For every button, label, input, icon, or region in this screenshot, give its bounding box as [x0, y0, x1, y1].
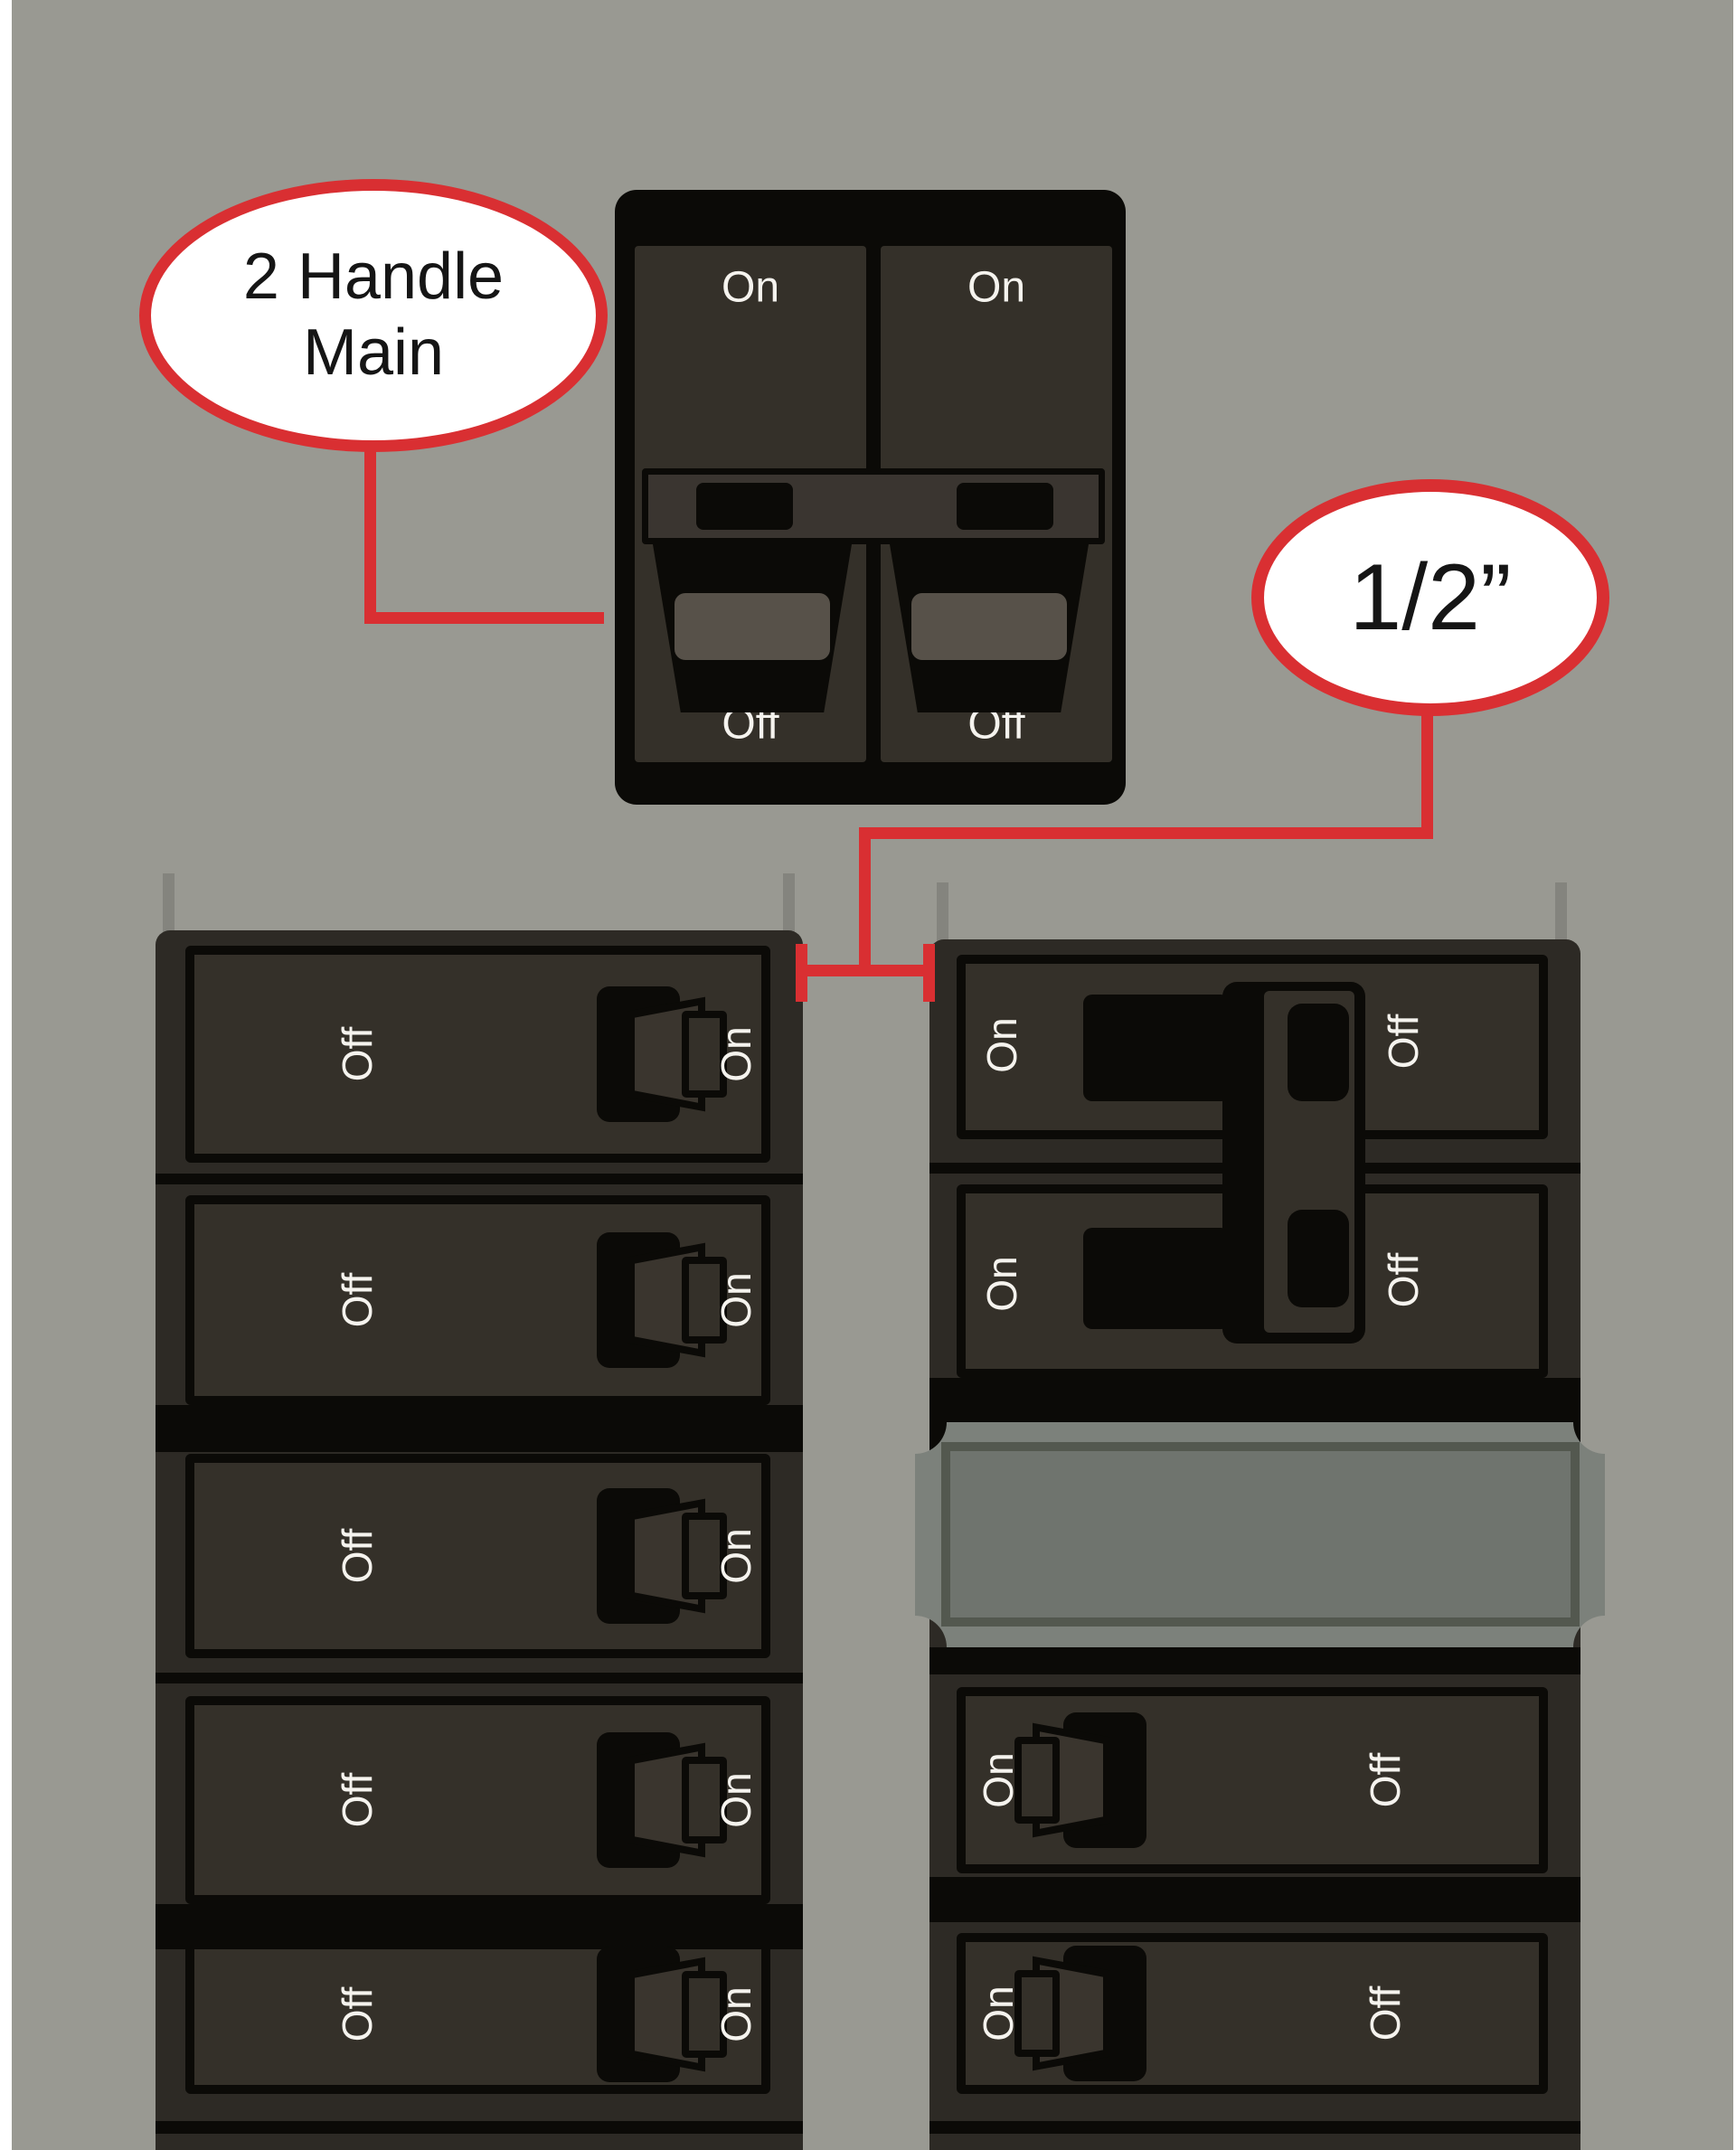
blank-filler-plate	[915, 1422, 1605, 1647]
main-on-label: On	[967, 263, 1025, 313]
callout-main-line1: 2 Handle	[243, 240, 504, 316]
handle-paddle-icon	[1083, 995, 1230, 1101]
callout-2-handle-main: 2 Handle Main	[139, 179, 608, 452]
row-gap-band	[929, 1877, 1580, 1922]
leader-line	[364, 612, 604, 624]
row-divider	[929, 2121, 1580, 2134]
breaker-on-label: On	[974, 1985, 1023, 2041]
breaker-on-label: On	[712, 1986, 760, 2042]
blank-plate-inset	[946, 1447, 1575, 1622]
callout-half-inch: 1/2”	[1251, 479, 1609, 716]
panel-tab	[937, 882, 948, 946]
breaker-off-label: Off	[1361, 1753, 1410, 1808]
main-on-label: On	[722, 263, 779, 313]
panel-tab	[163, 873, 175, 937]
panel-tab	[783, 873, 795, 937]
row-divider	[156, 2121, 803, 2134]
tie-bar-slot-icon	[1288, 1004, 1349, 1101]
row-gap-band	[156, 1405, 803, 1452]
tie-bar-slot-icon	[957, 483, 1053, 530]
tie-bar-slot-icon	[1288, 1210, 1349, 1307]
breaker-on-label: On	[974, 1752, 1023, 1807]
breaker-on-label: On	[712, 1772, 760, 1827]
row-divider	[156, 1174, 803, 1184]
breaker-on-label: On	[977, 1256, 1026, 1311]
gap-dimension-cap	[923, 944, 935, 1002]
leader-line	[859, 827, 1433, 839]
handle-paddle-icon	[1083, 1228, 1230, 1329]
breaker-off-label: Off	[1379, 1014, 1428, 1070]
breaker-panel-diagram: Off On Off On Off On Off On Off On On Of…	[0, 0, 1736, 2150]
breaker-on-label: On	[712, 1026, 760, 1081]
breaker-off-label: Off	[1379, 1253, 1428, 1308]
handle-grip-icon	[911, 593, 1067, 660]
leader-line	[1421, 712, 1433, 839]
panel-tab	[1555, 882, 1567, 946]
row-gap-band	[156, 1904, 803, 1949]
gap-dimension-cap	[796, 944, 807, 1002]
breaker-on-label: On	[712, 1528, 760, 1583]
row-gap-band	[929, 1647, 1580, 1674]
breaker-on-label: On	[977, 1017, 1026, 1072]
breaker-off-label: Off	[333, 1529, 382, 1584]
breaker-off-label: Off	[333, 1027, 382, 1082]
breaker-on-label: On	[712, 1272, 760, 1327]
tie-bar-slot-icon	[696, 483, 793, 530]
breaker-off-label: Off	[333, 1773, 382, 1828]
breaker-off-label: Off	[1361, 1986, 1410, 2042]
row-divider	[156, 1673, 803, 1683]
callout-gap-label: 1/2”	[1349, 544, 1511, 652]
leader-line	[859, 827, 871, 976]
breaker-off-label: Off	[333, 1987, 382, 2042]
gap-dimension-line	[801, 965, 929, 976]
handle-grip-icon	[675, 593, 830, 660]
leader-line	[364, 445, 376, 624]
breaker-off-label: Off	[333, 1273, 382, 1328]
callout-main-line2: Main	[303, 316, 444, 391]
